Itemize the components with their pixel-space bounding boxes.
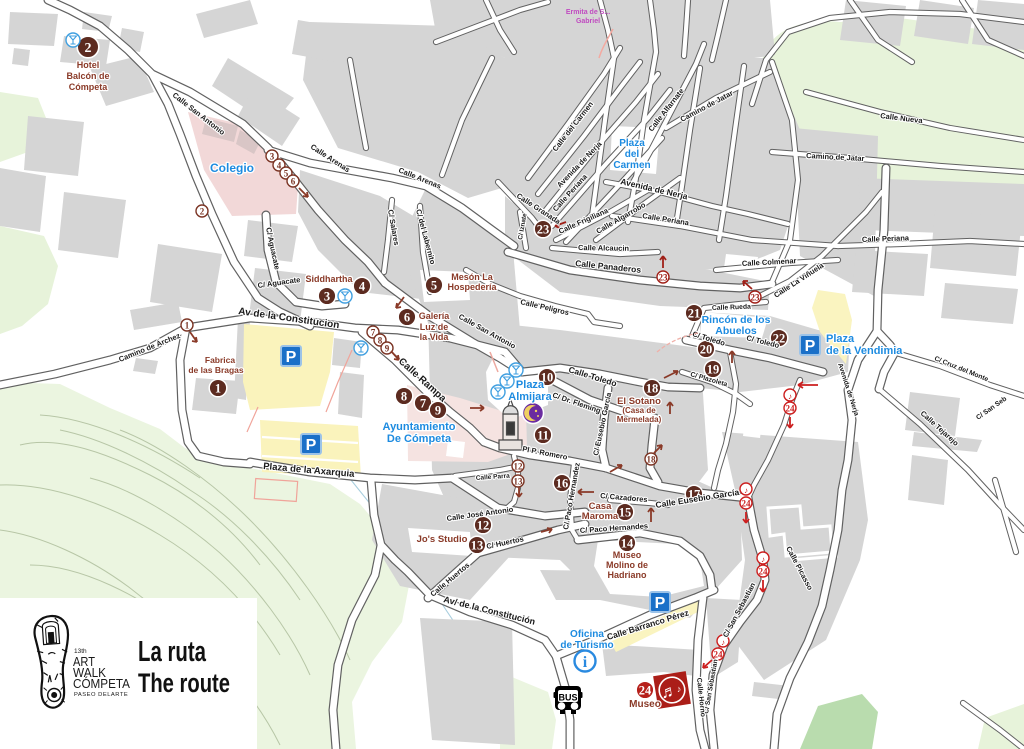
- svg-text:24: 24: [639, 683, 652, 697]
- svg-text:13: 13: [471, 538, 484, 552]
- svg-text:Hotel: Hotel: [77, 60, 100, 70]
- svg-text:Siddhartha: Siddhartha: [305, 274, 353, 284]
- svg-text:6: 6: [291, 177, 296, 187]
- svg-text:11: 11: [537, 428, 549, 442]
- svg-text:20: 20: [700, 342, 713, 356]
- svg-text:Plaza: Plaza: [516, 379, 545, 391]
- svg-text:24: 24: [742, 499, 752, 509]
- svg-text:Almijara: Almijara: [508, 391, 552, 403]
- svg-text:Oficina: Oficina: [570, 629, 604, 640]
- svg-text:24: 24: [759, 567, 769, 577]
- svg-text:13: 13: [514, 477, 524, 487]
- svg-text:12: 12: [477, 518, 490, 532]
- svg-text:18: 18: [646, 381, 659, 395]
- svg-text:Fabrica: Fabrica: [205, 355, 236, 365]
- svg-text:de Turismo: de Turismo: [560, 640, 613, 651]
- svg-text:♪: ♪: [744, 486, 748, 495]
- svg-text:Plaza: Plaza: [826, 333, 855, 345]
- svg-text:The route: The route: [138, 668, 230, 698]
- svg-text:Ermita de S...: Ermita de S...: [566, 9, 610, 16]
- svg-text:24: 24: [786, 404, 796, 414]
- svg-text:Galería: Galería: [419, 311, 451, 321]
- svg-text:PASEO DELARTE: PASEO DELARTE: [74, 692, 128, 698]
- svg-text:Calle Periana: Calle Periana: [862, 233, 910, 244]
- svg-text:Maroma: Maroma: [582, 511, 619, 522]
- svg-text:21: 21: [688, 306, 701, 320]
- svg-text:15: 15: [619, 505, 632, 519]
- svg-text:♪: ♪: [721, 638, 725, 647]
- svg-text:P: P: [286, 349, 297, 366]
- svg-text:De Cómpeta: De Cómpeta: [387, 433, 452, 445]
- svg-text:La ruta: La ruta: [138, 636, 207, 668]
- svg-text:BUS: BUS: [559, 693, 578, 704]
- svg-text:2: 2: [85, 41, 92, 56]
- svg-text:4: 4: [359, 279, 366, 293]
- svg-text:16: 16: [556, 476, 569, 490]
- svg-text:9: 9: [385, 344, 390, 354]
- svg-text:7: 7: [420, 396, 426, 410]
- svg-text:Calle Alcaucin: Calle Alcaucin: [578, 243, 630, 253]
- svg-text:5: 5: [431, 278, 437, 292]
- svg-text:Cómpeta: Cómpeta: [69, 82, 108, 92]
- svg-text:♪: ♪: [788, 392, 792, 401]
- svg-text:del: del: [625, 149, 640, 160]
- svg-text:Hospedería: Hospedería: [447, 282, 497, 292]
- svg-text:Luz de: Luz de: [420, 322, 449, 332]
- svg-text:de las Bragas: de las Bragas: [188, 365, 244, 375]
- svg-text:CÓMPETA: CÓMPETA: [73, 676, 130, 691]
- svg-text:Hadriano: Hadriano: [607, 570, 647, 580]
- svg-text:(Casa de: (Casa de: [622, 406, 656, 415]
- svg-text:3: 3: [324, 289, 330, 303]
- svg-text:8: 8: [401, 389, 407, 403]
- svg-text:Plaza: Plaza: [619, 138, 645, 149]
- svg-text:Mermelada): Mermelada): [617, 415, 662, 424]
- svg-text:i: i: [583, 654, 588, 671]
- svg-text:Museo: Museo: [629, 699, 661, 710]
- svg-text:Balcón de: Balcón de: [66, 71, 109, 81]
- svg-text:6: 6: [404, 310, 410, 324]
- svg-text:1: 1: [185, 321, 190, 331]
- svg-text:Ayuntamiento: Ayuntamiento: [383, 421, 456, 433]
- svg-text:9: 9: [435, 403, 441, 417]
- svg-text:Colegio: Colegio: [210, 161, 254, 175]
- svg-text:la Vida: la Vida: [420, 332, 450, 342]
- svg-text:Mesón La: Mesón La: [451, 272, 494, 282]
- svg-text:Museo: Museo: [613, 550, 642, 560]
- svg-text:Jo's Studio: Jo's Studio: [417, 534, 468, 545]
- svg-text:14: 14: [621, 536, 634, 550]
- svg-text:2: 2: [200, 207, 205, 217]
- svg-text:P: P: [306, 437, 317, 454]
- svg-text:de la Vendimia: de la Vendimia: [826, 345, 903, 357]
- svg-text:P: P: [655, 595, 666, 612]
- svg-text:23: 23: [537, 222, 550, 236]
- svg-text:18: 18: [647, 455, 657, 465]
- svg-text:Abuelos: Abuelos: [715, 325, 757, 337]
- svg-text:Gabriel: Gabriel: [576, 18, 600, 25]
- svg-text:Calle Rueda: Calle Rueda: [712, 304, 751, 312]
- svg-text:23: 23: [659, 273, 669, 283]
- svg-text:3: 3: [270, 152, 275, 162]
- svg-text:P: P: [805, 338, 816, 355]
- svg-text:23: 23: [751, 293, 761, 303]
- svg-text:Carmen: Carmen: [613, 160, 650, 171]
- svg-text:♪: ♪: [761, 555, 765, 564]
- svg-text:1: 1: [215, 381, 221, 395]
- svg-text:24: 24: [714, 650, 724, 660]
- svg-text:19: 19: [707, 362, 720, 376]
- svg-text:Molino de: Molino de: [606, 560, 648, 570]
- svg-text:12: 12: [514, 462, 524, 472]
